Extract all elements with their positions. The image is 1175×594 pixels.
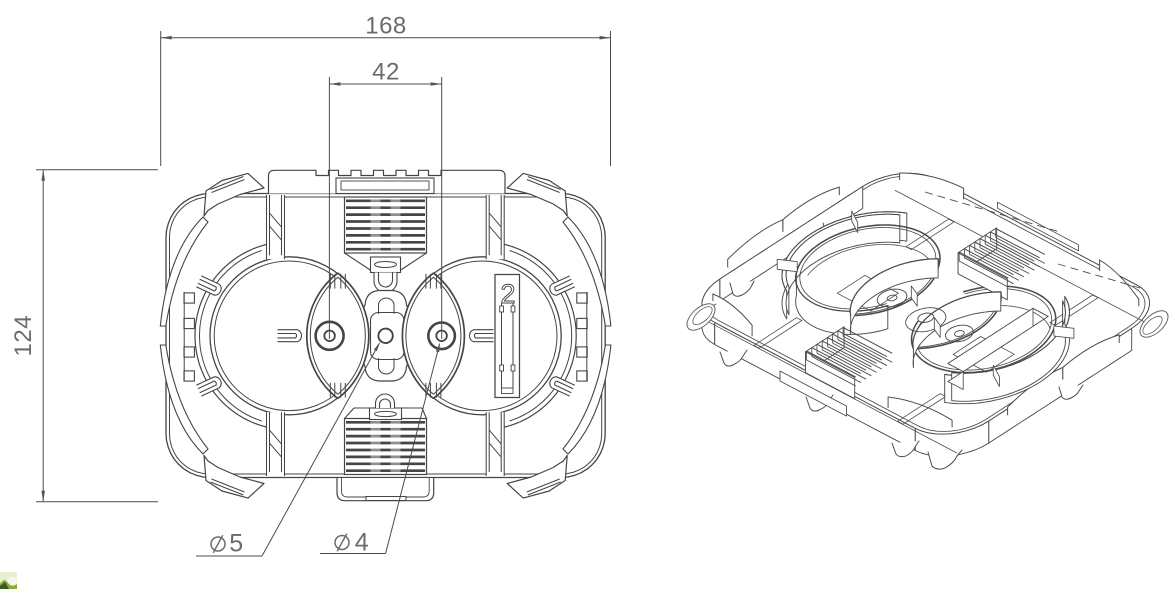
svg-text:168: 168 bbox=[365, 13, 407, 40]
svg-text:42: 42 bbox=[372, 59, 400, 86]
svg-text:4: 4 bbox=[355, 529, 369, 557]
svg-text:5: 5 bbox=[229, 530, 243, 558]
svg-text:2: 2 bbox=[500, 279, 515, 309]
svg-text:124: 124 bbox=[10, 315, 37, 357]
